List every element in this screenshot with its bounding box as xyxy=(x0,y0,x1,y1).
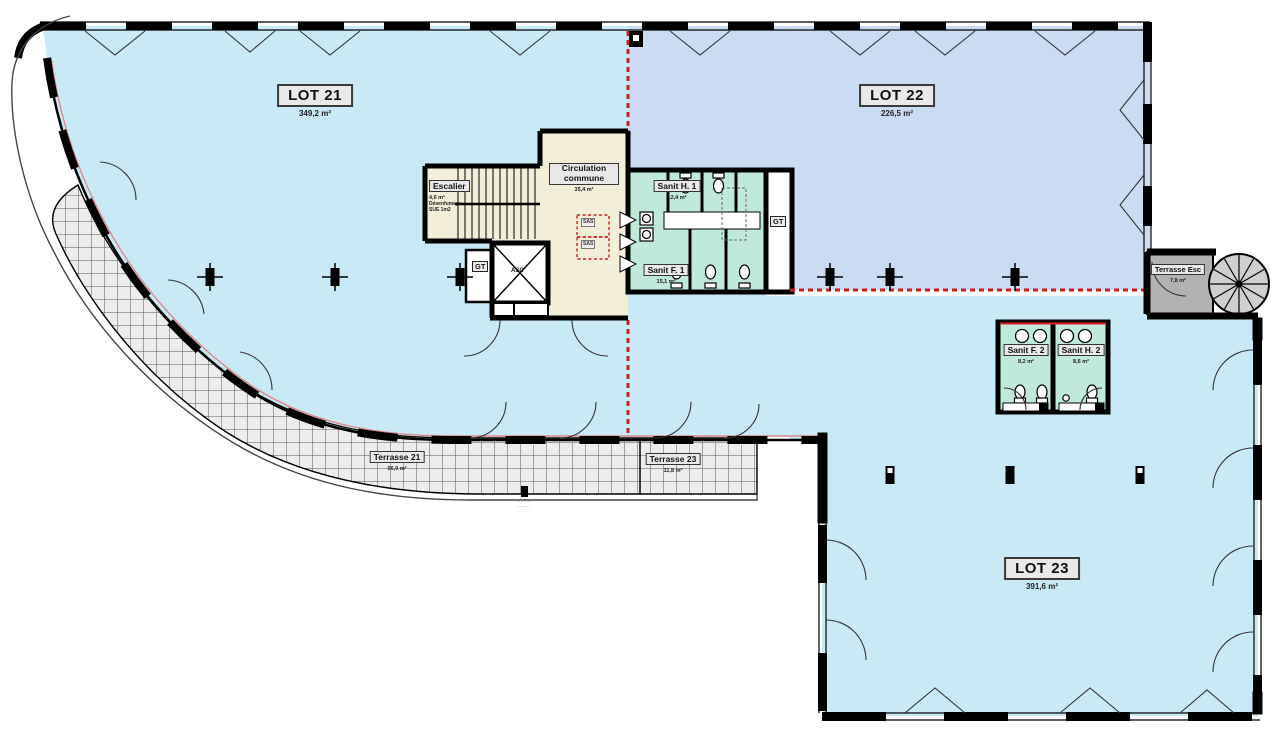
lot-23-label: LOT 23 391,6 m² xyxy=(1004,557,1080,591)
gt-closet xyxy=(466,250,492,302)
lot-22-label: LOT 22 226,5 m² xyxy=(859,84,935,118)
sas-label-2: SAS xyxy=(581,240,595,249)
facade-stub xyxy=(629,31,643,47)
lot-23-area: 391,6 m² xyxy=(1004,582,1080,591)
sanit-h1-name: Sanit H. 1 xyxy=(654,180,701,192)
escalier-label: Escalier 4,6 m² Désenfumage SUE 1m2 xyxy=(429,176,509,213)
gt-label-sanit: GT xyxy=(770,216,786,227)
gt-label-core: GT xyxy=(472,261,488,272)
escalier-name: Escalier xyxy=(429,180,470,192)
circulation-label: Circulation commune 35,4 m² xyxy=(549,163,619,193)
lot-22-area: 226,5 m² xyxy=(859,109,935,118)
sanit-h1-area: 12,4 m² xyxy=(654,195,701,201)
column xyxy=(1136,466,1145,484)
sanit-h2-area: 8,6 m² xyxy=(1058,359,1105,365)
sanit-f2-name: Sanit F. 2 xyxy=(1004,344,1049,356)
spiral-staircase xyxy=(1209,254,1269,314)
terrace-annotation: ·· ·· ···· ···· ···· xyxy=(518,499,531,509)
circulation-area: 35,4 m² xyxy=(549,187,619,193)
lot-21-area: 349,2 m² xyxy=(277,109,353,118)
terrasse-esc-name: Terrasse Esc xyxy=(1151,264,1205,275)
terrace-note-tick xyxy=(521,486,528,497)
sanit-h2-name: Sanit H. 2 xyxy=(1058,344,1105,356)
closet-b xyxy=(514,303,548,316)
terrasse-esc-label: Terrasse Esc 7,8 m² xyxy=(1151,259,1205,284)
sanit-f2-area: 8,2 m² xyxy=(1004,359,1049,365)
terrasse-esc-area: 7,8 m² xyxy=(1151,278,1205,284)
sas-label-1: SAS xyxy=(581,218,595,227)
closet-a xyxy=(492,303,514,316)
terrace-annotation-line-2: ···· ···· xyxy=(518,504,531,509)
sanit-f1-area: 15,1 m² xyxy=(644,279,689,285)
terrasse-21-name: Terrasse 21 xyxy=(370,451,425,463)
sanit-f2-label: Sanit F. 2 8,2 m² xyxy=(1004,340,1049,365)
asc-label: ASC xyxy=(511,268,524,274)
floor-plan-drawing xyxy=(0,0,1280,732)
sanit-h2-label: Sanit H. 2 8,6 m² xyxy=(1058,340,1105,365)
terrasse-21-label: Terrasse 21 56,9 m² xyxy=(370,447,425,472)
floor-plan: LOT 21 349,2 m² LOT 22 226,5 m² LOT 23 3… xyxy=(0,0,1280,732)
terrasse-23-name: Terrasse 23 xyxy=(646,453,701,465)
lot-23-name: LOT 23 xyxy=(1004,557,1080,580)
sanitary-block-2 xyxy=(998,322,1108,412)
terrasse-21-area: 56,9 m² xyxy=(370,466,425,472)
smoke-extraction-note-2: SUE 1m2 xyxy=(429,207,509,213)
lot-21-name: LOT 21 xyxy=(277,84,353,107)
lot-22-name: LOT 22 xyxy=(859,84,935,107)
circulation-name: Circulation commune xyxy=(549,163,619,185)
terrasse-23-label: Terrasse 23 11,8 m² xyxy=(646,449,701,474)
lot-21-label: LOT 21 349,2 m² xyxy=(277,84,353,118)
sanit-f1-label: Sanit F. 1 15,1 m² xyxy=(644,260,689,285)
sanit-f1-name: Sanit F. 1 xyxy=(644,264,689,276)
terrasse-23-area: 11,8 m² xyxy=(646,468,701,474)
column xyxy=(886,466,895,484)
column xyxy=(1006,466,1015,484)
sanit-h1-label: Sanit H. 1 12,4 m² xyxy=(654,176,701,201)
gt-shaft xyxy=(766,170,792,292)
top-left-corner-wall xyxy=(18,26,44,58)
sas-door-triangles xyxy=(620,212,636,272)
